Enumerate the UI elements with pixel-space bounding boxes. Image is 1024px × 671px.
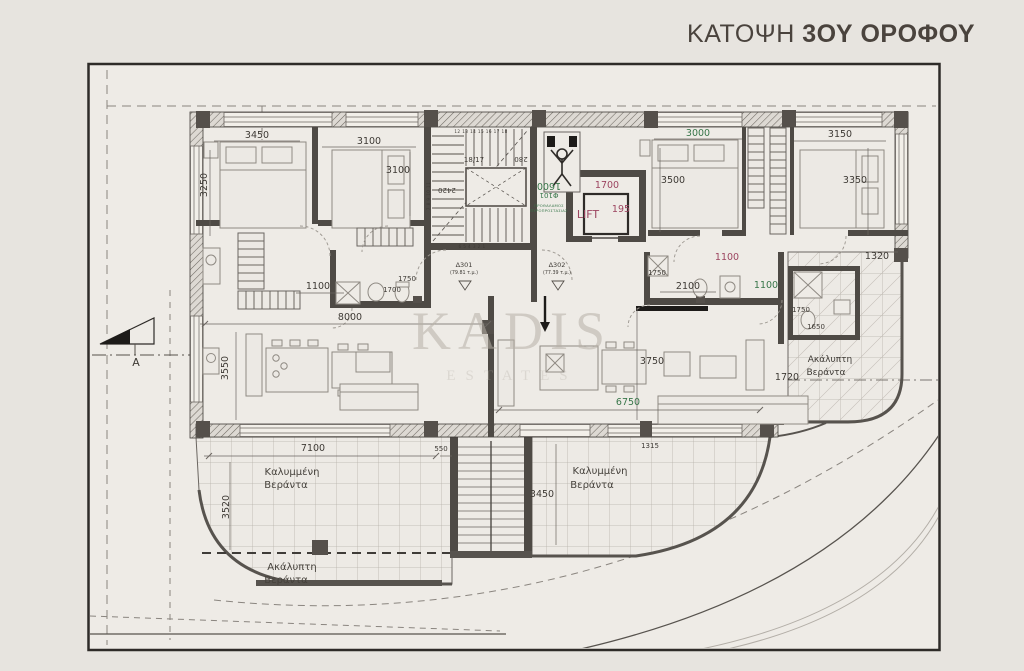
watermark-text: KADIS (412, 301, 612, 361)
sofa-left (340, 384, 418, 410)
dim-left-living-depth: 3550 (220, 356, 231, 380)
dim-mid-veranda-depth: 3450 (530, 489, 554, 500)
dim-bed2-width: 3100 (357, 136, 381, 147)
dim-right-wc-b: 1650 (807, 323, 825, 331)
unit-302-area: (77.39 τ.μ.) (543, 270, 571, 276)
lift-label: LIFT (577, 208, 600, 221)
dim-left-veranda-width: 7100 (301, 443, 325, 454)
dim-mid-veranda-step: 1315 (641, 442, 659, 450)
stair-riser: 280 (514, 155, 527, 163)
external-stair (450, 437, 532, 558)
dim-left-veranda-depth: 3520 (221, 495, 232, 519)
coffee-table-left (356, 352, 390, 372)
dim-left-living-width: 8000 (338, 312, 362, 323)
dim-bed1-depth: 3250 (199, 173, 210, 197)
label-covered-mid-2: Βεράντα (570, 479, 614, 491)
dim-bed3-depth: 3500 (661, 175, 685, 186)
dim-bed1-width: 3450 (245, 130, 269, 141)
label-covered-left-1: Καλυμμένη (265, 466, 320, 478)
dim-right-wc-a: 1750 (792, 306, 810, 314)
appliance-left (203, 248, 220, 284)
dim-center-living-width: 6750 (616, 397, 640, 408)
dim-right-bath-door: 1100 (715, 252, 739, 263)
dim-right-hall: 1100 (754, 280, 778, 291)
armchair-center (664, 352, 690, 376)
dim-left-bath-b: 1700 (383, 286, 401, 294)
dim-center-living-depth: 3750 (640, 356, 664, 367)
dim-left-veranda-step: 550 (434, 445, 447, 453)
section-marker-label: A (132, 356, 140, 369)
label-uncovered-right-1: Ακάλυπτη (808, 355, 852, 365)
stair-bottom-numbers: 6 5 4 3 2 1 (458, 244, 485, 249)
label-uncovered-bottom-1: Ακάλυπτη (267, 561, 316, 573)
unit-302-label: Δ302 (549, 261, 566, 269)
dim-bed4-depth: 3350 (843, 175, 867, 186)
sofa-right (746, 340, 764, 390)
unit-301-area: (79.81 τ.μ.) (450, 270, 478, 276)
lift-width: 1700 (595, 180, 619, 191)
bed-4 (800, 150, 884, 228)
lobby-dim: 1600 (537, 180, 561, 191)
dim-right-bath-width: 2100 (676, 281, 700, 292)
label-uncovered-bottom-2: Βεράντα (264, 574, 308, 586)
tv-console (636, 306, 708, 311)
dim-left-bath-a: 1750 (398, 275, 416, 283)
label-uncovered-right-2: Βεράντα (806, 368, 845, 378)
lobby-note-2: ΠΥΡΟΠΡΟΣΤΑΣΙΑΣ (530, 208, 568, 213)
stair-count-label: 18/17 (464, 156, 484, 164)
bed-1 (220, 142, 306, 228)
dim-stair-width: 2420 (438, 186, 456, 194)
bed-2 (332, 150, 410, 228)
label-covered-left-2: Βεράντα (264, 479, 308, 491)
stair-side-numbers: 7 8 9 10 11 (426, 182, 431, 210)
dim-bed3-width: 3000 (686, 128, 710, 139)
unit-301-label: Δ301 (456, 261, 473, 269)
stair-top-numbers: 12 13 14 15 16 17 18 (454, 129, 507, 134)
lobby-door-code: Φ101 (540, 191, 559, 199)
label-covered-mid-1: Καλυμμένη (573, 465, 628, 477)
appliance-left-2 (203, 348, 219, 374)
dim-bed4-width: 3150 (828, 129, 852, 140)
lift-depth: 195 (612, 204, 630, 215)
watermark-subtext: ESTATES (446, 368, 577, 384)
dim-left-hall: 1100 (306, 281, 330, 292)
dim-right-corner: 1320 (865, 251, 889, 262)
dim-bed2-depth: 3100 (386, 165, 410, 176)
coffee-table-center (700, 356, 736, 378)
dim-right-bath-a: 1750 (648, 269, 666, 277)
floor-plan: 3450 3250 3100 3100 3000 3500 3150 3350 … (0, 0, 1024, 671)
dim-right-veranda-depth: 1720 (775, 372, 799, 383)
wardrobe-bed2 (357, 228, 413, 246)
